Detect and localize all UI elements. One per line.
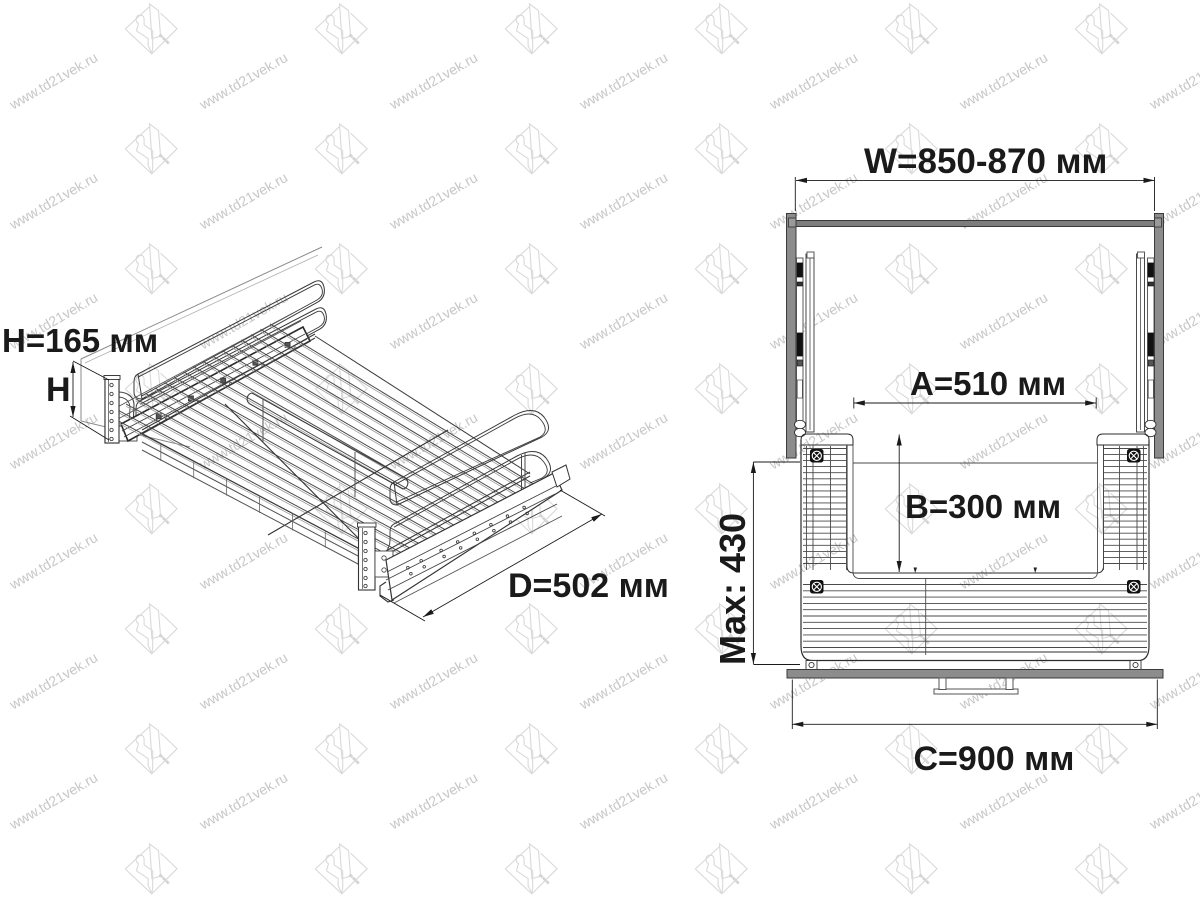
- svg-text:H: H: [46, 371, 71, 409]
- svg-text:C=900 мм: C=900 мм: [914, 740, 1075, 778]
- svg-text:H=165 мм: H=165 мм: [2, 322, 158, 359]
- svg-text:B=300 мм: B=300 мм: [905, 488, 1061, 525]
- svg-text:D=502 мм: D=502 мм: [508, 567, 669, 605]
- svg-text:A=510 мм: A=510 мм: [910, 365, 1066, 402]
- svg-text:Max: 430: Max: 430: [712, 513, 753, 665]
- svg-text:W=850-870 мм: W=850-870 мм: [864, 142, 1107, 181]
